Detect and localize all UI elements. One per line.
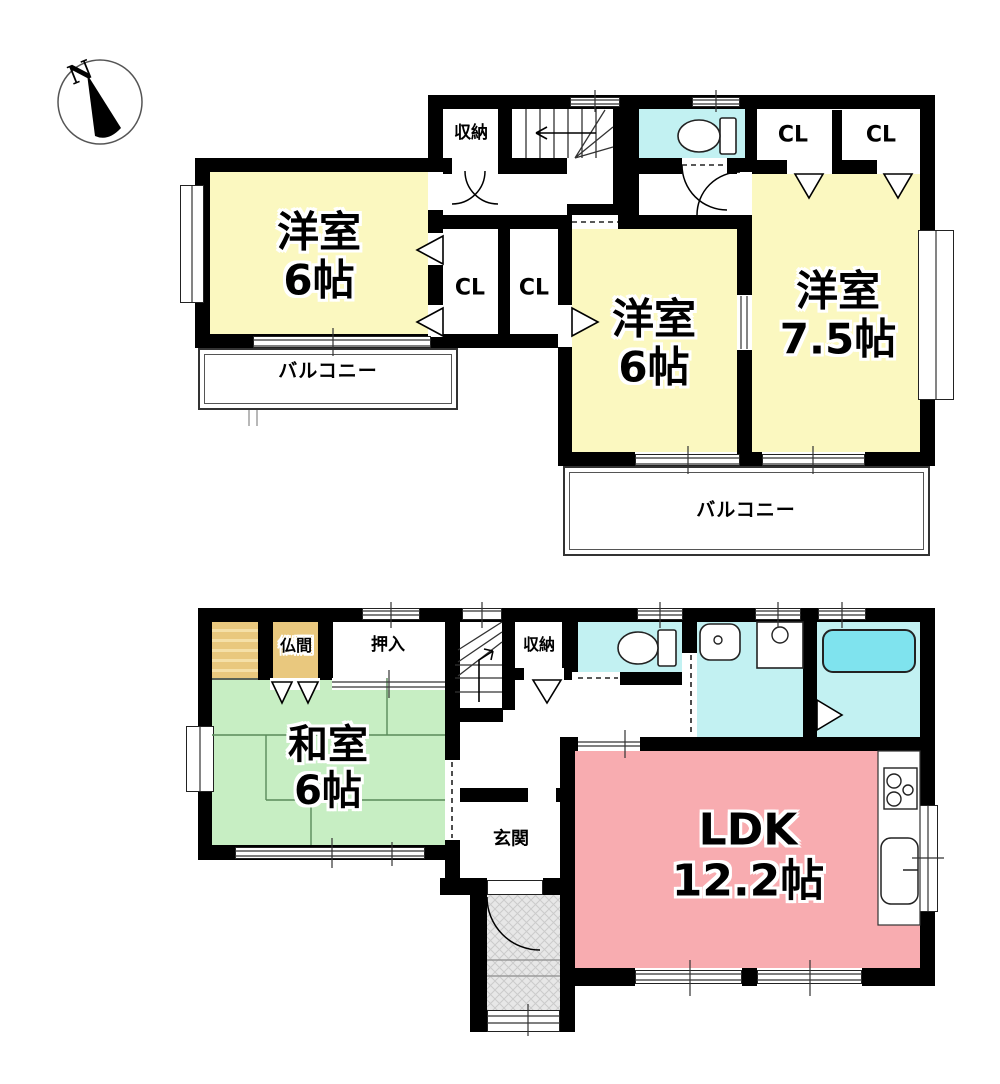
toilet-icon — [618, 630, 676, 666]
stove-icon — [884, 768, 917, 809]
storage-label-1f: 収納 — [523, 636, 555, 654]
oshiire-label: 押入 — [371, 636, 405, 656]
kitchen-sink-icon — [881, 838, 918, 904]
stairs-icon — [526, 109, 613, 158]
washing-machine-icon — [757, 622, 803, 668]
room-label-ldk: LDK 12.2帖 — [672, 805, 825, 906]
storage-label-2f: 収納 — [454, 124, 488, 144]
toilet-icon — [678, 118, 736, 154]
floor-plan: N 収納 CL CL CL CL 洋室 6帖 洋室 6帖 洋室 7.5帖 バルコ… — [0, 0, 1000, 1084]
room-label-yoshitsu-center: 洋室 6帖 — [612, 296, 696, 393]
room-label-yoshitsu-east: 洋室 7.5帖 — [780, 268, 896, 365]
room-label-washitsu: 和室 6帖 — [288, 722, 368, 814]
plan-symbols — [0, 0, 1000, 1084]
closet-label: CL — [455, 275, 485, 300]
balcony-label-south: バルコニー — [696, 500, 796, 522]
threshold-dashed-lines — [452, 165, 727, 838]
butsuma-label: 仏間 — [280, 637, 312, 655]
bathtub-icon — [823, 630, 915, 672]
entrance-porch — [487, 895, 560, 1010]
balcony-label-west: バルコニー — [278, 361, 378, 383]
sink-icon — [700, 624, 740, 660]
genkan-label: 玄関 — [493, 830, 529, 851]
stairs-icon — [455, 622, 502, 702]
folding-door-icon — [272, 174, 912, 730]
closet-label: CL — [778, 122, 808, 147]
room-label-yoshitsu-west: 洋室 6帖 — [277, 209, 361, 306]
closet-label: CL — [519, 275, 549, 300]
closet-label: CL — [866, 122, 896, 147]
